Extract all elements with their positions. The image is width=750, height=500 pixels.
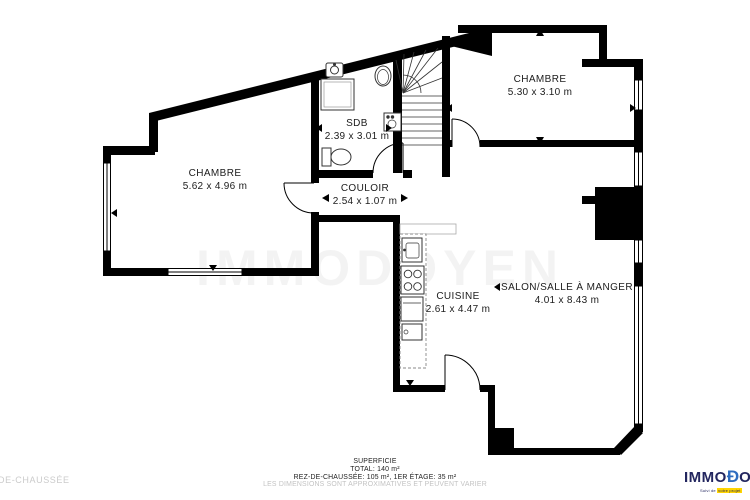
logo-text-suffix: OYEN xyxy=(739,469,750,486)
room-dims: 2.54 x 1.07 m xyxy=(333,196,398,209)
room-dims: 2.39 x 3.01 m xyxy=(325,131,390,144)
room-dims: 4.01 x 8.43 m xyxy=(501,295,633,308)
agency-tagline: Suivi de votre projet xyxy=(700,488,742,493)
room-dims: 2.61 x 4.47 m xyxy=(426,304,491,317)
room-label-salon: SALON/SALLE À MANGER 4.01 x 8.43 m xyxy=(501,282,633,307)
floor-areas: REZ-DE-CHAUSSÉE: 105 m², 1ER ÉTAGE: 35 m… xyxy=(0,474,750,482)
room-label-couloir: COULOIR 2.54 x 1.07 m xyxy=(333,183,398,208)
room-name: CHAMBRE xyxy=(183,168,248,181)
room-name: SALON/SALLE À MANGER xyxy=(501,282,633,295)
logo-text-immo: IMMO xyxy=(684,469,727,486)
floor-plan-svg: IMMODOYEN xyxy=(0,0,750,500)
area-summary: SUPERFICIE TOTAL: 140 m² REZ-DE-CHAUSSÉE… xyxy=(0,458,750,489)
tagline-part1: Suivi de xyxy=(700,488,716,493)
room-label-sdb: SDB 2.39 x 3.01 m xyxy=(325,118,390,143)
room-name: CHAMBRE xyxy=(508,74,573,87)
agency-logo: IMMOƉOYEN xyxy=(684,468,750,487)
logo-d-glyph-icon: Ɖ xyxy=(727,467,739,486)
total-area: TOTAL: 140 m² xyxy=(0,466,750,474)
superficie-title: SUPERFICIE xyxy=(0,458,750,466)
room-label-chambre-left: CHAMBRE 5.62 x 4.96 m xyxy=(183,168,248,193)
room-name: COULOIR xyxy=(333,183,398,196)
room-dims: 5.62 x 4.96 m xyxy=(183,181,248,194)
room-name: CUISINE xyxy=(426,291,491,304)
floor-plan-page: IMMODOYEN xyxy=(0,0,750,500)
room-dims: 5.30 x 3.10 m xyxy=(508,87,573,100)
chimney-block xyxy=(582,187,642,240)
stairs xyxy=(396,48,442,145)
room-name: SDB xyxy=(325,118,390,131)
tagline-part2: votre projet xyxy=(717,488,741,493)
bathroom-fixtures xyxy=(321,63,401,166)
room-label-cuisine: CUISINE 2.61 x 4.47 m xyxy=(426,291,491,316)
room-label-chambre-top: CHAMBRE 5.30 x 3.10 m xyxy=(508,74,573,99)
dimensions-disclaimer: LES DIMENSIONS SONT APPROXIMATIVES ET PE… xyxy=(0,481,750,489)
